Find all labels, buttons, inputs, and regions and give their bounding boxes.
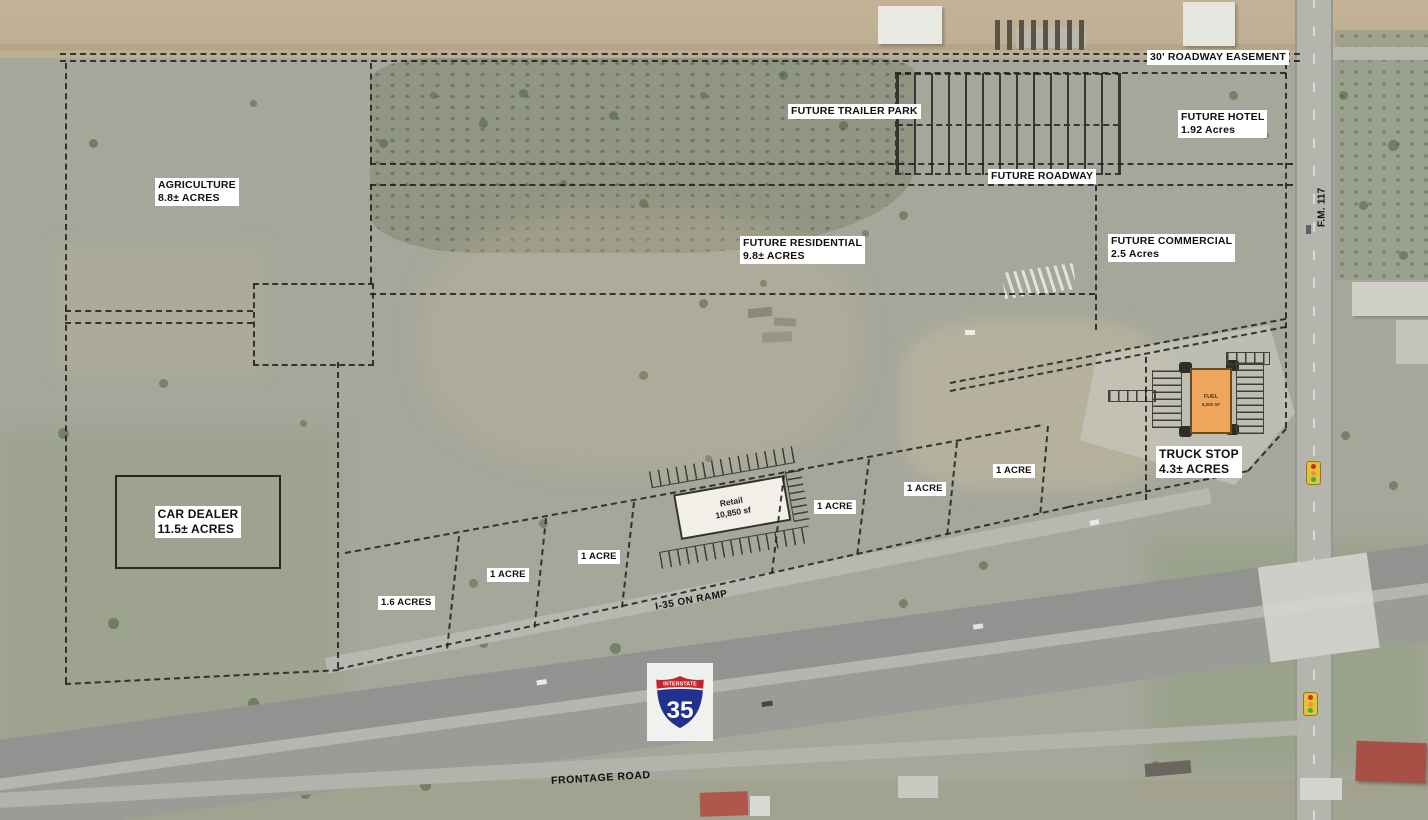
building-top-right-white	[1183, 2, 1235, 46]
building-top-gray	[1016, 28, 1086, 48]
lot-divider	[534, 518, 547, 628]
agriculture-label: AGRICULTURE 8.8± ACRES	[155, 178, 239, 206]
trailer-park-mid-line	[897, 124, 1119, 126]
yellow-light	[1308, 702, 1313, 707]
retail-building: Retail 10,850 sf	[673, 475, 791, 540]
svg-text:35: 35	[666, 697, 693, 724]
lot-divider	[1039, 426, 1049, 513]
fuel-building: FUEL 5,000 SF	[1190, 368, 1232, 434]
lot-label-1-acre: 1 ACRE	[487, 568, 529, 582]
truck-lanes-east	[1236, 360, 1264, 434]
lot-label-1-acre: 1 ACRE	[904, 482, 946, 496]
car-dealer-south-boundary	[65, 669, 339, 685]
interstate-shield-graphic: INTERSTATE 35	[651, 670, 709, 734]
red-light	[1311, 464, 1316, 469]
scrub-field-east	[1335, 30, 1428, 280]
future-roadway-south-line	[370, 184, 1293, 186]
junk-yard-item	[762, 331, 792, 343]
building-east-small	[1396, 320, 1428, 364]
car-dealer-parcel-box: CAR DEALER 11.5± ACRES	[115, 475, 281, 569]
future-residential-label: FUTURE RESIDENTIAL 9.8± ACRES	[740, 236, 865, 264]
building-bottom-center	[898, 776, 938, 798]
junk-yard-item	[748, 307, 773, 318]
green-light	[1311, 477, 1316, 482]
residential-south-line	[370, 293, 1095, 295]
highway-vehicle	[973, 623, 984, 629]
green-light	[1308, 708, 1313, 713]
fuel-building-size: 5,000 SF	[1202, 402, 1220, 408]
building-top-white	[878, 6, 942, 44]
top-dirt-track	[0, 44, 1300, 50]
junk-yard-item	[774, 317, 797, 327]
building-east-gray	[1352, 282, 1428, 316]
interstate-35-shield: INTERSTATE 35	[647, 663, 713, 741]
roadway-easement-label: 30' ROADWAY EASEMENT	[1147, 50, 1289, 65]
highway-vehicle	[536, 679, 547, 685]
lot-label-1-acre: 1 ACRE	[993, 464, 1035, 478]
lot-divider	[621, 502, 635, 608]
car-dealer-east-boundary	[337, 362, 339, 668]
truck-bottom-right	[1145, 760, 1192, 777]
fuel-lanes-west	[1152, 370, 1182, 428]
building-mid-white	[750, 796, 770, 816]
yellow-light	[1311, 471, 1316, 476]
truck-stop-label: TRUCK STOP 4.3± ACRES	[1156, 446, 1242, 478]
parked-trucks-row	[995, 20, 1091, 50]
roadway-easement-line-a	[60, 53, 1300, 55]
truck-scale-icon	[1226, 352, 1270, 365]
fuel-pump-row-icon	[1108, 390, 1156, 402]
highway-bridge-deck	[1258, 553, 1380, 663]
building-bottom-red	[1355, 741, 1426, 783]
retail-complex: Retail 10,850 sf	[640, 439, 823, 584]
future-roadway-label: FUTURE ROADWAY	[988, 169, 1096, 184]
scrub-field-center	[370, 58, 915, 253]
commercial-west-boundary	[1095, 185, 1097, 330]
tree-cluster-dots	[0, 0, 7, 7]
car-dealer-name: CAR DEALER	[158, 507, 239, 522]
car-dealer-acres: 11.5± ACRES	[158, 522, 239, 537]
future-hotel-label: FUTURE HOTEL 1.92 Acres	[1178, 110, 1267, 138]
future-roadway-north-line	[370, 163, 1293, 165]
agriculture-south-line-b	[65, 322, 253, 324]
trailer-park-grid	[895, 73, 1121, 175]
svg-text:INTERSTATE: INTERSTATE	[663, 681, 697, 687]
agriculture-south-line-a	[65, 310, 253, 312]
lot-label-1-acre: 1 ACRE	[814, 500, 856, 514]
property-east-boundary	[1285, 63, 1287, 428]
vehicle-dot	[965, 330, 975, 335]
property-west-boundary	[65, 63, 67, 683]
trailer-park-label: FUTURE TRAILER PARK	[788, 104, 921, 119]
agriculture-east-boundary-upper	[370, 63, 372, 163]
lot-divider	[946, 442, 958, 535]
excluded-parcel-notch	[253, 283, 374, 366]
tan-yard-storage	[900, 320, 1170, 490]
site-plan-aerial: Retail 10,850 sf FUEL 5,000 SF CAR DEALE…	[0, 0, 1428, 820]
building-mid-red	[700, 791, 749, 817]
agriculture-east-boundary-lower	[370, 184, 372, 283]
roadway-easement-line-b	[60, 60, 1300, 62]
fm117-road-label: F.M. 117	[1315, 185, 1330, 230]
future-commercial-label: FUTURE COMMERCIAL 2.5 Acres	[1108, 234, 1235, 262]
easement-spur-road	[1333, 47, 1428, 60]
highway-vehicle	[761, 701, 773, 707]
lot-label-1-acre: 1 ACRE	[578, 550, 620, 564]
car-dealer-label: CAR DEALER 11.5± ACRES	[155, 506, 242, 538]
traffic-light-icon	[1303, 692, 1318, 716]
lot-divider	[856, 459, 870, 555]
traffic-light-icon	[1306, 461, 1321, 485]
fuel-building-name: FUEL	[1204, 394, 1218, 402]
lot-label-1-6-acres: 1.6 ACRES	[378, 596, 435, 610]
red-light	[1308, 695, 1313, 700]
truck-stop-west-boundary	[1145, 357, 1147, 500]
